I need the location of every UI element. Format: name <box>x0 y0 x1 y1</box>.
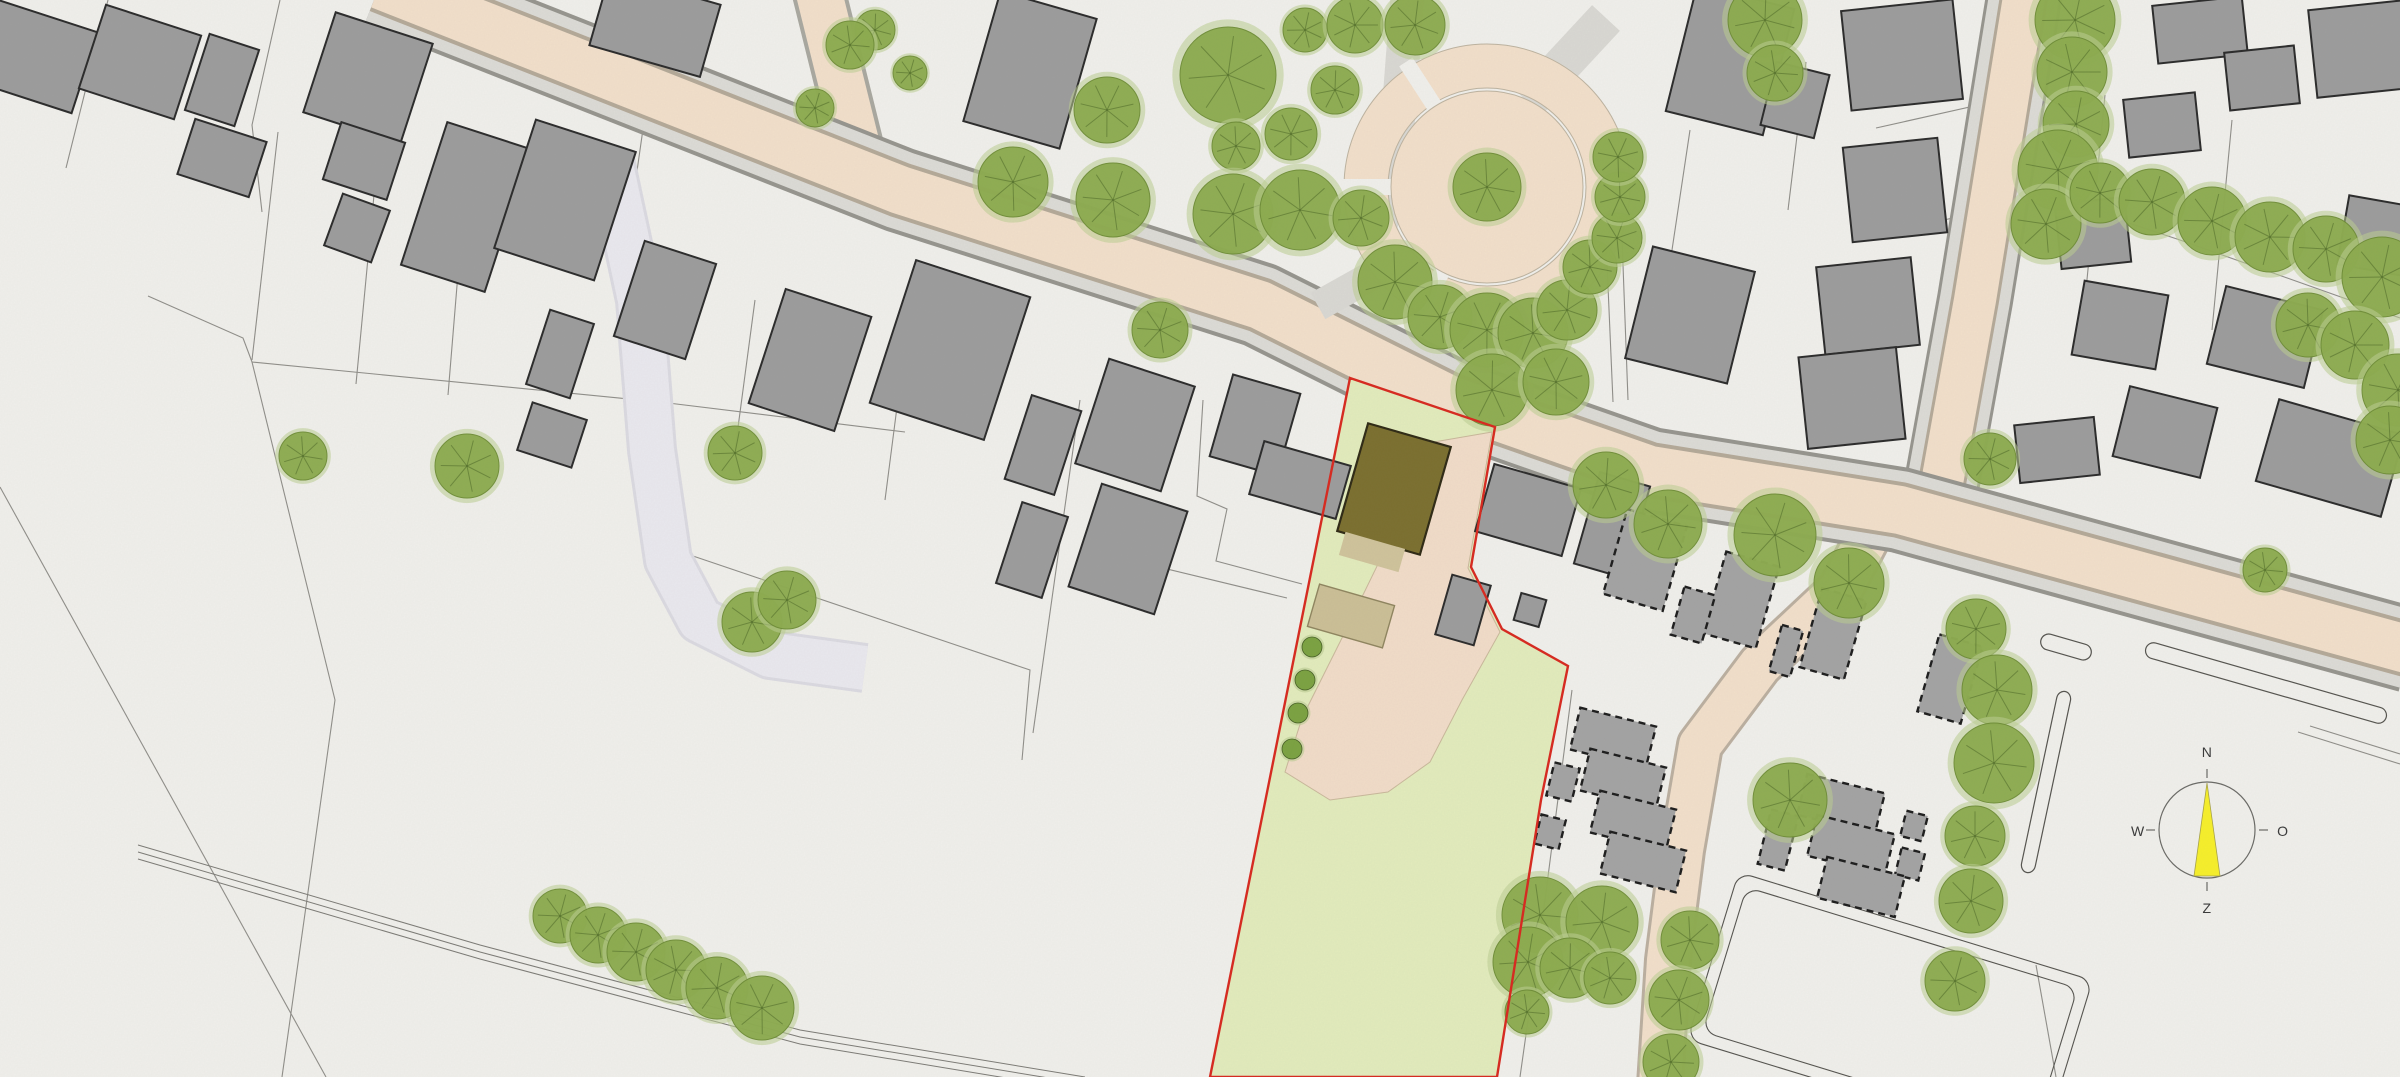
compass-label-north: N <box>2202 744 2213 760</box>
tree-icon <box>2239 544 2290 595</box>
tree-icon <box>793 86 837 130</box>
tree-icon <box>1293 668 1318 693</box>
existing-building <box>1816 257 1920 354</box>
tree-icon <box>1920 946 1990 1016</box>
tree-icon <box>1743 41 1808 106</box>
existing-building <box>1843 138 1947 242</box>
existing-building <box>2123 92 2201 157</box>
tree-icon <box>1948 717 2041 810</box>
tree-icon <box>1128 298 1193 363</box>
tree-icon <box>1656 906 1723 973</box>
existing-building <box>2308 0 2400 98</box>
tree-icon <box>890 53 929 92</box>
tree-icon <box>1280 737 1305 762</box>
tree-icon <box>1070 157 1156 243</box>
tree-icon <box>1069 72 1146 149</box>
tree-icon <box>972 141 1053 222</box>
tree-icon <box>430 429 504 503</box>
tree-icon <box>1644 965 1714 1035</box>
compass-label-east: O <box>2277 823 2288 839</box>
tree-icon <box>1518 344 1595 421</box>
site-plan-svg <box>0 0 2400 1077</box>
tree-icon <box>1307 62 1363 118</box>
tree-icon <box>1727 487 1822 582</box>
tree-icon <box>1934 864 2008 938</box>
tree-icon <box>1940 801 2010 871</box>
existing-building <box>1798 347 1905 449</box>
tree-icon <box>1580 948 1640 1008</box>
tree-icon <box>1279 4 1330 55</box>
tree-icon <box>1286 701 1311 726</box>
compass-label-west: W <box>2131 823 2145 839</box>
tree-icon <box>1589 128 1647 186</box>
existing-building <box>2014 417 2100 483</box>
tree-icon <box>1629 485 1708 564</box>
tree-icon <box>1747 757 1833 843</box>
tree-icon <box>753 566 820 633</box>
tree-icon <box>1208 118 1264 174</box>
compass-label-south: Z <box>2203 900 2212 916</box>
tree-icon <box>1261 104 1321 164</box>
tree-icon <box>1960 429 2020 489</box>
tree-icon <box>1300 635 1325 660</box>
existing-building <box>2224 46 2300 111</box>
tree-icon <box>704 422 767 485</box>
existing-building <box>2072 281 2169 370</box>
tree-icon <box>822 17 878 73</box>
tree-icon <box>725 971 799 1045</box>
tree-icon <box>275 428 331 484</box>
tree-icon <box>1808 542 1889 623</box>
tree-icon <box>1448 148 1527 227</box>
tree-icon <box>1172 19 1283 130</box>
existing-building <box>1841 0 1963 111</box>
site-plan-map: N O Z W <box>0 0 2400 1077</box>
